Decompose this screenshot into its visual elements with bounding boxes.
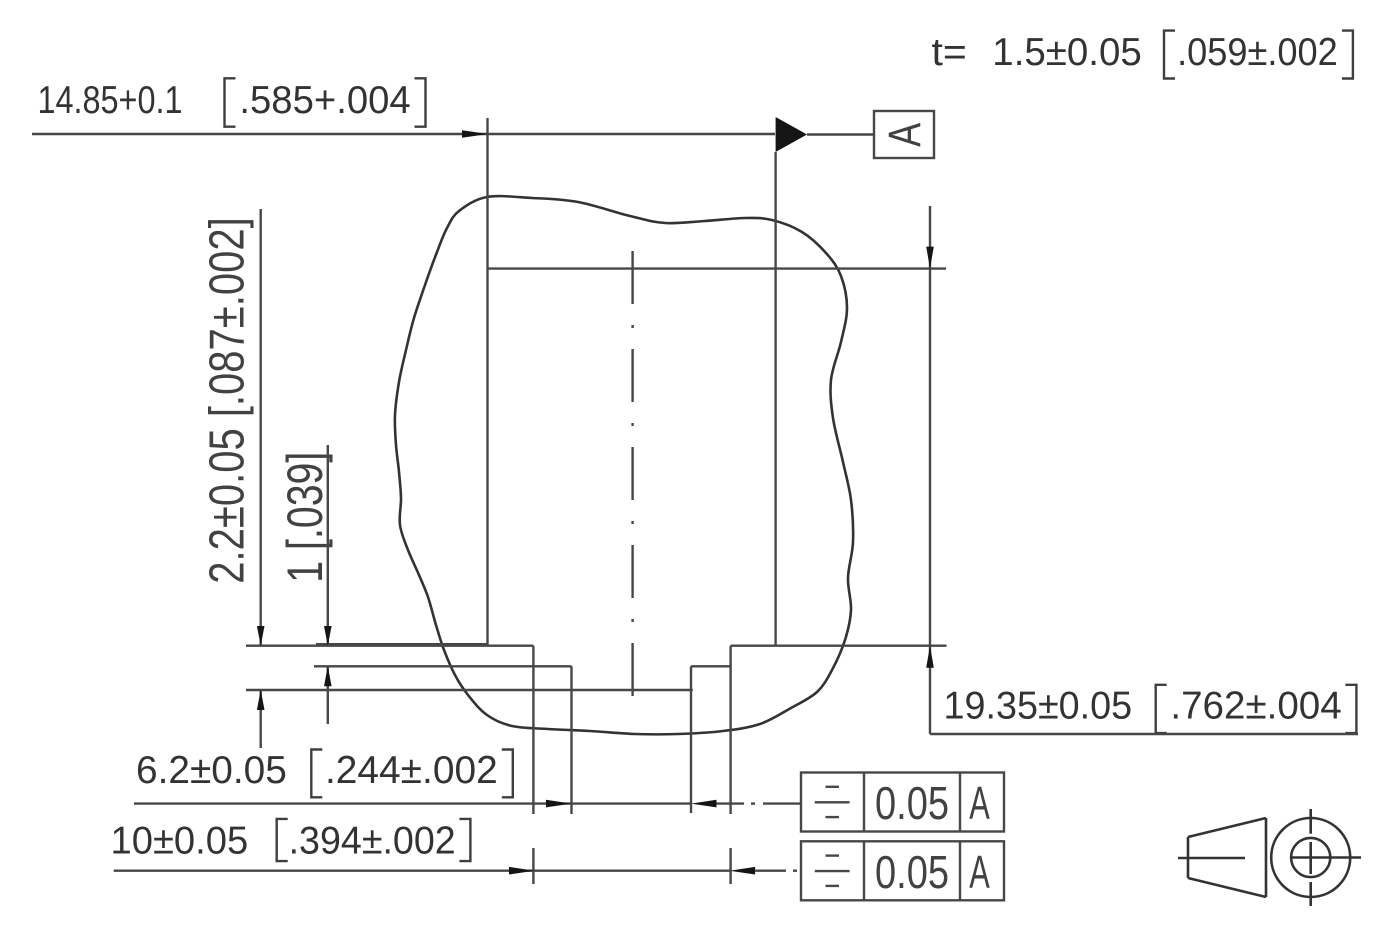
svg-text:.059±.002: .059±.002 xyxy=(1177,31,1338,74)
svg-text:.762±.004: .762±.004 xyxy=(1170,684,1341,727)
svg-text:10±0.05: 10±0.05 xyxy=(111,820,249,863)
svg-text:t=: t= xyxy=(932,31,967,74)
svg-text:A: A xyxy=(969,777,990,829)
svg-text:19.35±0.05: 19.35±0.05 xyxy=(944,684,1133,727)
svg-text:0.05: 0.05 xyxy=(875,846,949,898)
svg-text:.394±.002: .394±.002 xyxy=(289,820,456,863)
svg-text:.244±.002: .244±.002 xyxy=(325,749,498,792)
svg-text:A: A xyxy=(969,846,990,898)
svg-text:6.2±0.05: 6.2±0.05 xyxy=(136,749,287,792)
svg-text:14.85+0.1: 14.85+0.1 xyxy=(38,79,183,122)
svg-text:1 [.039]: 1 [.039] xyxy=(277,452,333,583)
svg-text:A: A xyxy=(879,123,930,147)
svg-text:0.05: 0.05 xyxy=(875,777,949,829)
svg-text:1.5±0.05: 1.5±0.05 xyxy=(992,31,1142,74)
svg-text:2.2±0.05 [.087±.002]: 2.2±0.05 [.087±.002] xyxy=(201,217,255,583)
svg-text:.585+.004: .585+.004 xyxy=(239,79,410,122)
